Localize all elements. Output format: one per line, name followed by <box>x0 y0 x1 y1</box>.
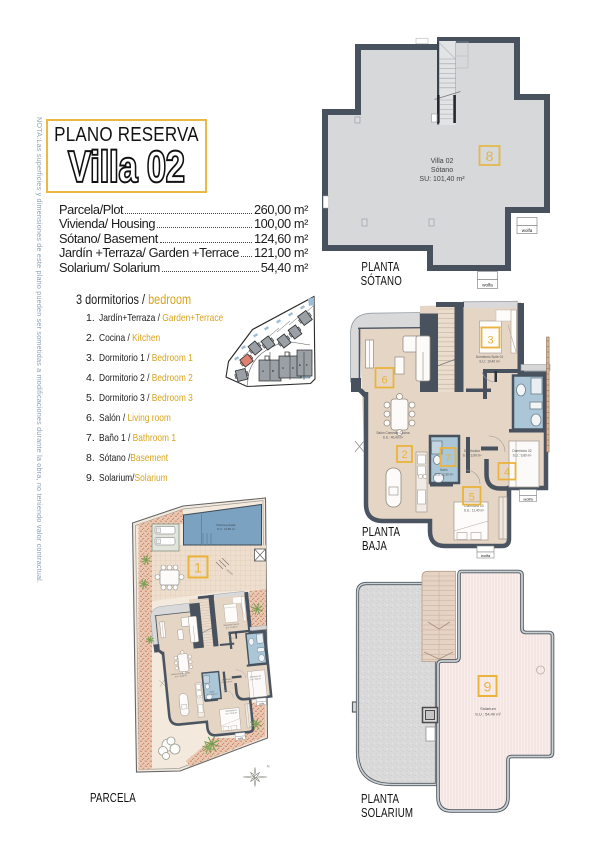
svg-text:7: 7 <box>445 453 451 465</box>
svg-text:1: 1 <box>194 560 202 576</box>
svg-text:wolfa: wolfa <box>523 497 533 502</box>
svg-text:wolfa: wolfa <box>482 283 493 288</box>
svg-text:S.U.: 21,80 m²: S.U.: 21,80 m² <box>217 527 235 531</box>
svg-text:Distribuidor: Distribuidor <box>464 449 481 453</box>
svg-text:Villa 02: Villa 02 <box>431 158 454 165</box>
svg-text:S.U.: 3,90 m²: S.U.: 3,90 m² <box>463 454 482 458</box>
svg-text:S.U.: 9,80 m²: S.U.: 9,80 m² <box>513 454 532 458</box>
svg-text:SU: 101,40 m²: SU: 101,40 m² <box>419 176 465 183</box>
svg-text:Dormitorio 02: Dormitorio 02 <box>512 449 531 453</box>
svg-text:Dormitorio Suite 01: Dormitorio Suite 01 <box>476 355 504 359</box>
svg-text:wolfa: wolfa <box>522 228 533 233</box>
svg-text:wolfa: wolfa <box>481 553 491 558</box>
svg-text:Sótano: Sótano <box>431 167 453 174</box>
svg-text:4: 4 <box>504 467 510 479</box>
svg-text:Solarium: Solarium <box>480 706 496 711</box>
svg-text:S.U.: 40,40 m²: S.U.: 40,40 m² <box>383 436 404 440</box>
svg-text:S.U.: 19,40 m²: S.U.: 19,40 m² <box>479 360 500 364</box>
svg-text:8: 8 <box>486 148 494 164</box>
svg-text:9: 9 <box>484 679 492 695</box>
svg-text:6: 6 <box>381 375 387 387</box>
svg-text:S.U.: 3,30 m²: S.U.: 3,30 m² <box>435 473 454 477</box>
svg-text:Baño: Baño <box>440 468 448 472</box>
svg-text:5: 5 <box>469 492 475 504</box>
svg-text:N: N <box>267 763 270 768</box>
svg-text:S.U.: 11,40 m²: S.U.: 11,40 m² <box>464 509 484 513</box>
svg-text:2: 2 <box>401 449 407 461</box>
svg-text:S.U.: 54,40 m²: S.U.: 54,40 m² <box>475 712 501 717</box>
svg-text:3: 3 <box>487 335 493 347</box>
svg-text:Salón Comedor-Cocina: Salón Comedor-Cocina <box>376 431 409 435</box>
